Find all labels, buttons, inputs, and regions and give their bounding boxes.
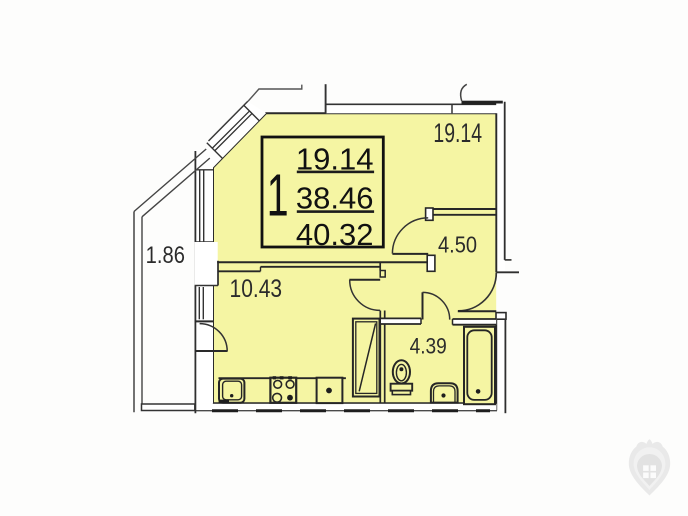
svg-text:10.43: 10.43 — [230, 274, 283, 302]
svg-text:4.50: 4.50 — [438, 231, 477, 258]
svg-text:40.32: 40.32 — [296, 217, 374, 252]
svg-text:4.39: 4.39 — [410, 334, 447, 359]
svg-text:1: 1 — [267, 161, 289, 228]
svg-text:19.14: 19.14 — [433, 118, 482, 148]
svg-text:1.86: 1.86 — [146, 241, 185, 268]
